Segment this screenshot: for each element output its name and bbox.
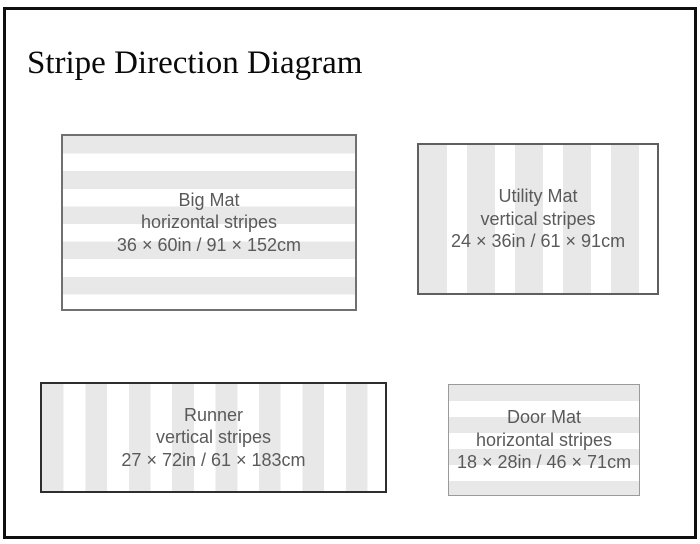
diagram-title: Stripe Direction Diagram [27, 45, 362, 83]
runner-label: Runner vertical stripes 27 × 72in / 61 ×… [121, 404, 305, 472]
mat-stripe-direction: vertical stripes [451, 208, 625, 231]
mat-name: Runner [121, 404, 305, 427]
mat-stripe-direction: horizontal stripes [457, 429, 631, 452]
mat-stripe-direction: vertical stripes [121, 426, 305, 449]
door-mat-label: Door Mat horizontal stripes 18 × 28in / … [457, 406, 631, 474]
big-mat-rectangle: Big Mat horizontal stripes 36 × 60in / 9… [61, 134, 357, 311]
runner-rectangle: Runner vertical stripes 27 × 72in / 61 ×… [40, 382, 387, 493]
mat-dimensions: 18 × 28in / 46 × 71cm [457, 451, 631, 474]
door-mat-rectangle: Door Mat horizontal stripes 18 × 28in / … [448, 384, 640, 496]
mat-name: Door Mat [457, 406, 631, 429]
mat-dimensions: 36 × 60in / 91 × 152cm [117, 234, 301, 257]
mat-dimensions: 24 × 36in / 61 × 91cm [451, 230, 625, 253]
utility-mat-label: Utility Mat vertical stripes 24 × 36in /… [451, 185, 625, 253]
big-mat-label: Big Mat horizontal stripes 36 × 60in / 9… [117, 189, 301, 257]
mat-name: Utility Mat [451, 185, 625, 208]
mat-dimensions: 27 × 72in / 61 × 183cm [121, 449, 305, 472]
mat-stripe-direction: horizontal stripes [117, 211, 301, 234]
mat-name: Big Mat [117, 189, 301, 212]
utility-mat-rectangle: Utility Mat vertical stripes 24 × 36in /… [417, 143, 659, 295]
